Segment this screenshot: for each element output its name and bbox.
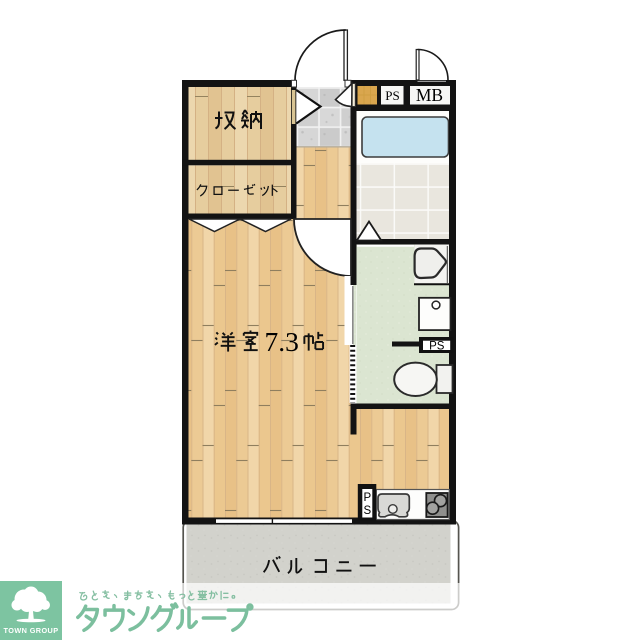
svg-text:P: P: [363, 492, 371, 504]
svg-text:TOWN GROUP: TOWN GROUP: [4, 626, 59, 635]
svg-text:S: S: [363, 505, 371, 517]
svg-text:7.3: 7.3: [265, 326, 299, 357]
svg-text:PS: PS: [429, 341, 445, 353]
svg-text:MB: MB: [416, 85, 443, 105]
svg-text:PS: PS: [385, 88, 399, 103]
